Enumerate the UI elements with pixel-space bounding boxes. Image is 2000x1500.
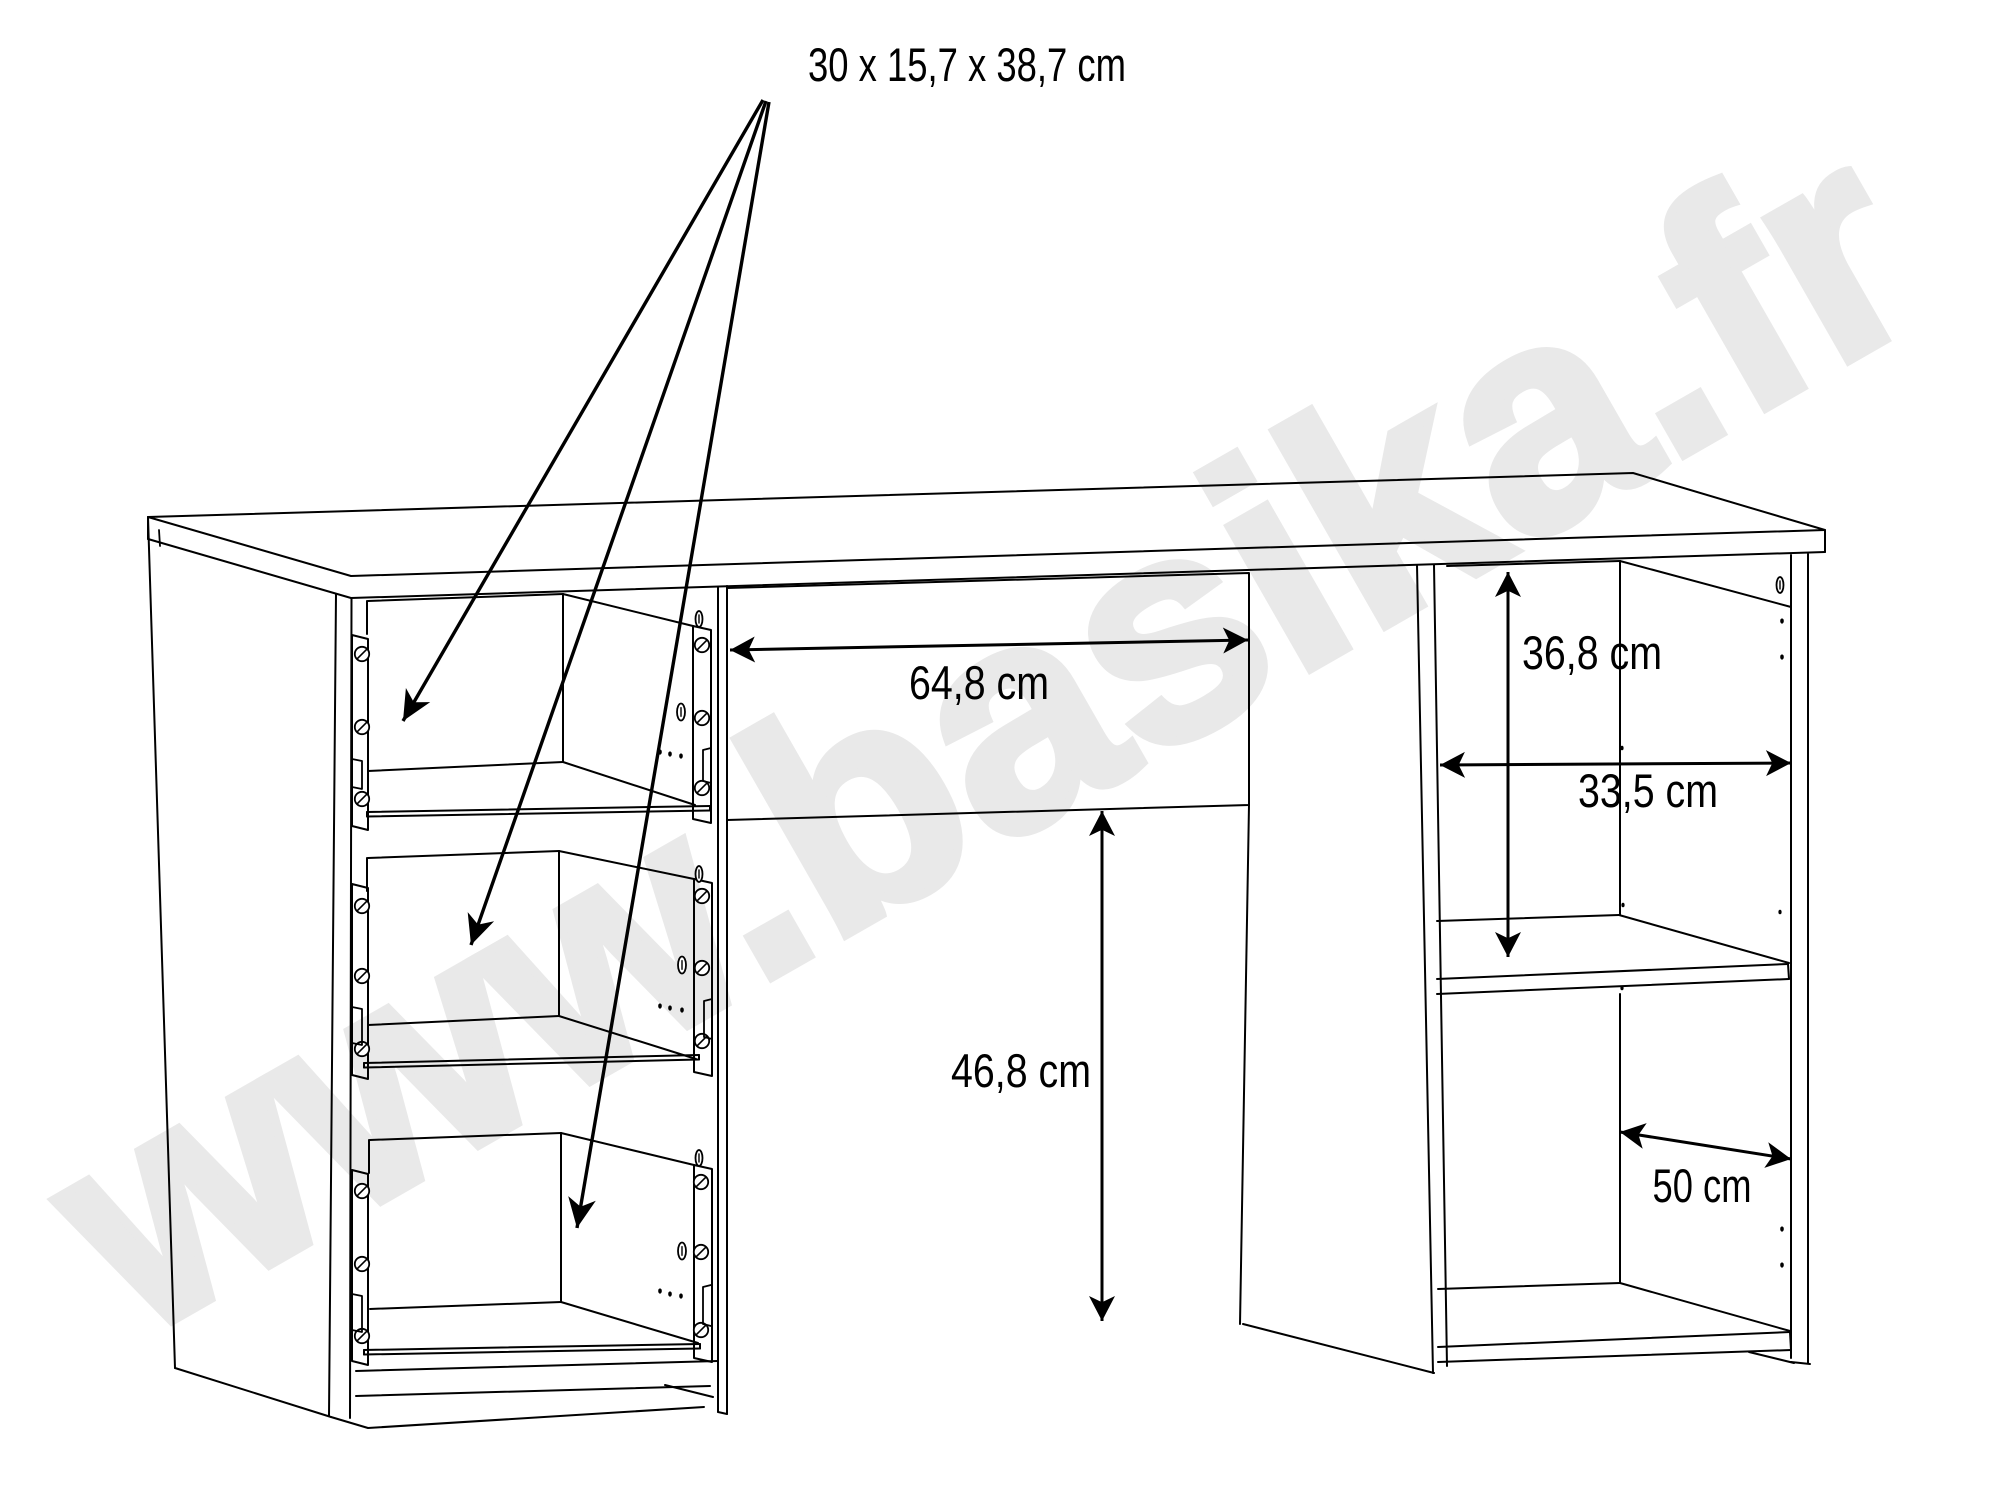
svg-text:64,8 cm: 64,8 cm <box>909 656 1049 709</box>
svg-text:33,5 cm: 33,5 cm <box>1578 764 1718 817</box>
svg-text:46,8 cm: 46,8 cm <box>951 1044 1091 1097</box>
svg-text:36,8 cm: 36,8 cm <box>1522 626 1662 679</box>
svg-text:50 cm: 50 cm <box>1653 1159 1752 1212</box>
svg-text:30 x 15,7 x 38,7 cm: 30 x 15,7 x 38,7 cm <box>808 38 1126 91</box>
